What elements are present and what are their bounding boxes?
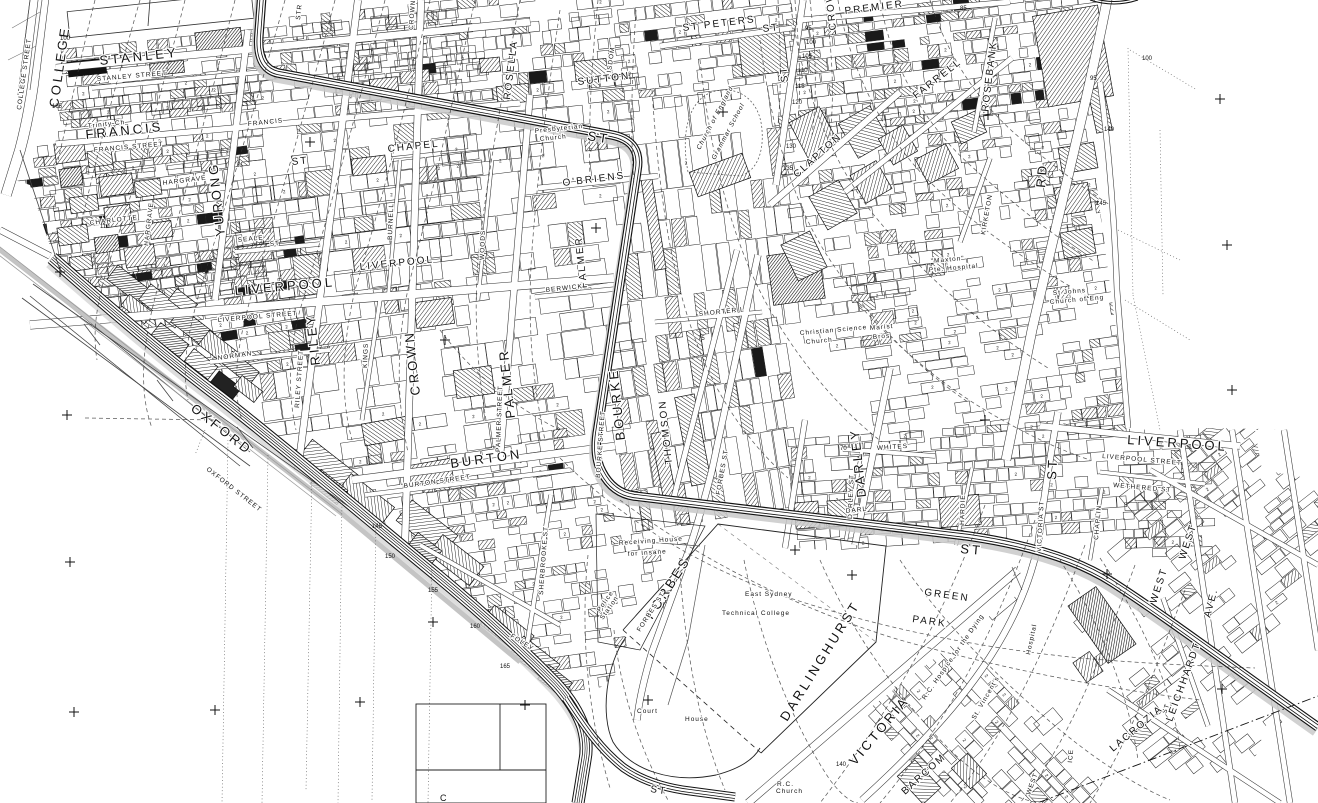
svg-text:100: 100	[60, 36, 71, 42]
svg-text:ST: ST	[762, 22, 780, 35]
svg-text:140: 140	[1104, 127, 1115, 133]
svg-text:ICE: ICE	[1067, 749, 1075, 763]
svg-text:ST: ST	[1044, 457, 1060, 480]
svg-text:ST: ST	[269, 240, 280, 248]
svg-text:Technical College: Technical College	[722, 610, 790, 617]
svg-text:C: C	[440, 793, 449, 803]
svg-text:70: 70	[840, 446, 847, 452]
svg-text:145: 145	[1096, 201, 1107, 207]
svg-text:120: 120	[792, 100, 803, 106]
svg-text:85: 85	[960, 6, 967, 12]
svg-text:R.C.: R.C.	[777, 781, 794, 788]
svg-text:75: 75	[698, 336, 705, 342]
svg-text:East Sydney: East Sydney	[745, 591, 793, 598]
svg-text:ST: ST	[960, 541, 984, 558]
svg-text:Church: Church	[776, 788, 803, 795]
svg-text:100: 100	[806, 40, 817, 46]
svg-text:140: 140	[836, 762, 847, 768]
svg-text:95: 95	[1090, 76, 1097, 82]
svg-text:HARDIE: HARDIE	[959, 494, 967, 525]
svg-text:KINGS: KINGS	[362, 343, 370, 368]
svg-text:155: 155	[428, 588, 439, 594]
svg-text:95: 95	[805, 26, 812, 32]
svg-text:105: 105	[52, 104, 63, 110]
svg-text:110: 110	[100, 224, 110, 230]
svg-text:ST: ST	[291, 155, 309, 168]
svg-text:130: 130	[786, 144, 797, 150]
svg-text:BURNELL: BURNELL	[387, 203, 395, 240]
svg-text:ST: ST	[778, 65, 791, 83]
svg-text:135: 135	[783, 166, 794, 172]
svg-text:160: 160	[470, 624, 481, 630]
svg-text:RD: RD	[1033, 162, 1050, 188]
svg-text:145: 145	[372, 524, 383, 530]
svg-text:110: 110	[798, 68, 808, 74]
svg-text:115: 115	[795, 84, 805, 90]
svg-text:Court: Court	[637, 708, 658, 715]
svg-text:150: 150	[385, 554, 396, 560]
svg-text:ST: ST	[650, 784, 668, 797]
svg-text:100: 100	[1142, 56, 1153, 62]
svg-text:WOODS: WOODS	[479, 230, 487, 261]
svg-text:House: House	[685, 716, 709, 723]
svg-text:105: 105	[802, 54, 813, 60]
svg-text:165: 165	[500, 664, 511, 670]
